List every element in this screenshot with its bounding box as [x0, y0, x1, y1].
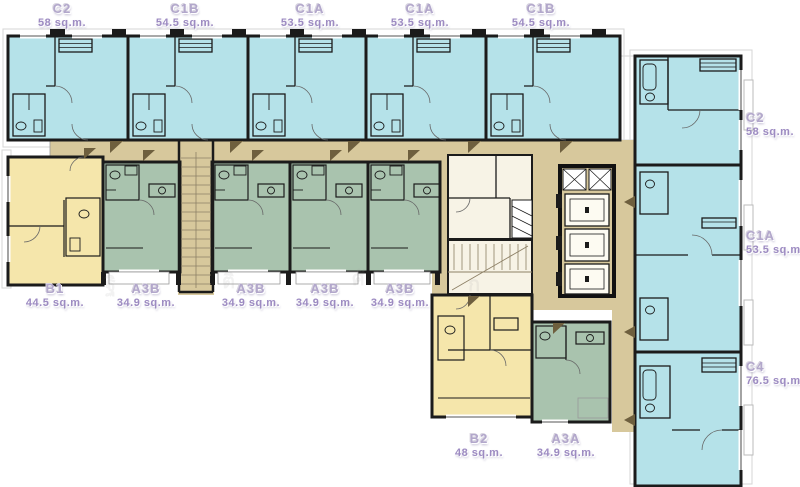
unit-area: 58 sq.m. — [746, 125, 794, 139]
unit-name: A3B — [117, 282, 175, 296]
unit-area: 53.5 sq.m. — [281, 16, 339, 30]
unit-area: 54.5 sq.m. — [156, 16, 214, 30]
unit-area: 76.5 sq.m. — [746, 374, 800, 388]
unit-label-a3b-2: A3B 34.9 sq.m. — [222, 282, 280, 310]
floor-plan-canvas — [0, 0, 800, 487]
unit-label-top-c2: C2 58 sq.m. — [38, 2, 86, 30]
unit-name: C1B — [156, 2, 214, 16]
unit-b2-shape — [432, 295, 532, 420]
unit-name: C2 — [746, 111, 794, 125]
unit-label-right-c1a: C1A 53.5 sq.m. — [746, 229, 800, 257]
unit-area: 58 sq.m. — [38, 16, 86, 30]
unit-area: 44.5 sq.m. — [26, 296, 84, 310]
unit-area: 34.9 sq.m. — [222, 296, 280, 310]
unit-label-a3b-3: A3B 34.9 sq.m. — [296, 282, 354, 310]
unit-name: C1A — [391, 2, 449, 16]
unit-name: C1A — [746, 229, 800, 243]
unit-area: 34.9 sq.m. — [296, 296, 354, 310]
unit-a3b-row — [101, 162, 440, 285]
unit-label-top-c1a-2: C1A 53.5 sq.m. — [391, 2, 449, 30]
top-wing — [8, 29, 620, 140]
unit-name: A3B — [296, 282, 354, 296]
unit-area: 54.5 sq.m. — [512, 16, 570, 30]
unit-name: B1 — [26, 282, 84, 296]
unit-label-top-c1b-1: C1B 54.5 sq.m. — [156, 2, 214, 30]
unit-a3a-shape — [532, 322, 610, 425]
unit-b1-shape — [6, 157, 104, 285]
unit-area: 34.9 sq.m. — [371, 296, 429, 310]
service-rooms — [448, 155, 532, 239]
unit-label-a3b-1: A3B 34.9 sq.m. — [117, 282, 175, 310]
unit-label-a3a: A3A 34.9 sq.m. — [537, 432, 595, 460]
watermark-fragment: ฐิ — [105, 268, 116, 300]
unit-name: A3A — [537, 432, 595, 446]
unit-name: C2 — [38, 2, 86, 16]
unit-name: C1A — [281, 2, 339, 16]
unit-name: A3B — [371, 282, 429, 296]
unit-area: 53.5 sq.m. — [391, 16, 449, 30]
unit-area: 34.9 sq.m. — [117, 296, 175, 310]
right-wing — [635, 56, 753, 486]
unit-name: C4 — [746, 360, 800, 374]
unit-label-top-c1b-2: C1B 54.5 sq.m. — [512, 2, 570, 30]
unit-label-b2: B2 48 sq.m. — [455, 432, 503, 460]
unit-label-right-c4: C4 76.5 sq.m. — [746, 360, 800, 388]
stairwell-icon — [448, 240, 532, 294]
unit-area: 53.5 sq.m. — [746, 243, 800, 257]
unit-label-right-c2: C2 58 sq.m. — [746, 111, 794, 139]
unit-area: 48 sq.m. — [455, 446, 503, 460]
unit-label-a3b-4: A3B 34.9 sq.m. — [371, 282, 429, 310]
watermark-fragment: ก — [468, 268, 480, 300]
elevator-icon — [556, 166, 614, 296]
unit-name: B2 — [455, 432, 503, 446]
floor-plan-page: C2 58 sq.m. C1B 54.5 sq.m. C1A 53.5 sq.m… — [0, 0, 800, 487]
unit-label-top-c1a-1: C1A 53.5 sq.m. — [281, 2, 339, 30]
unit-name: C1B — [512, 2, 570, 16]
unit-label-b1: B1 44.5 sq.m. — [26, 282, 84, 310]
unit-area: 34.9 sq.m. — [537, 446, 595, 460]
unit-name: A3B — [222, 282, 280, 296]
